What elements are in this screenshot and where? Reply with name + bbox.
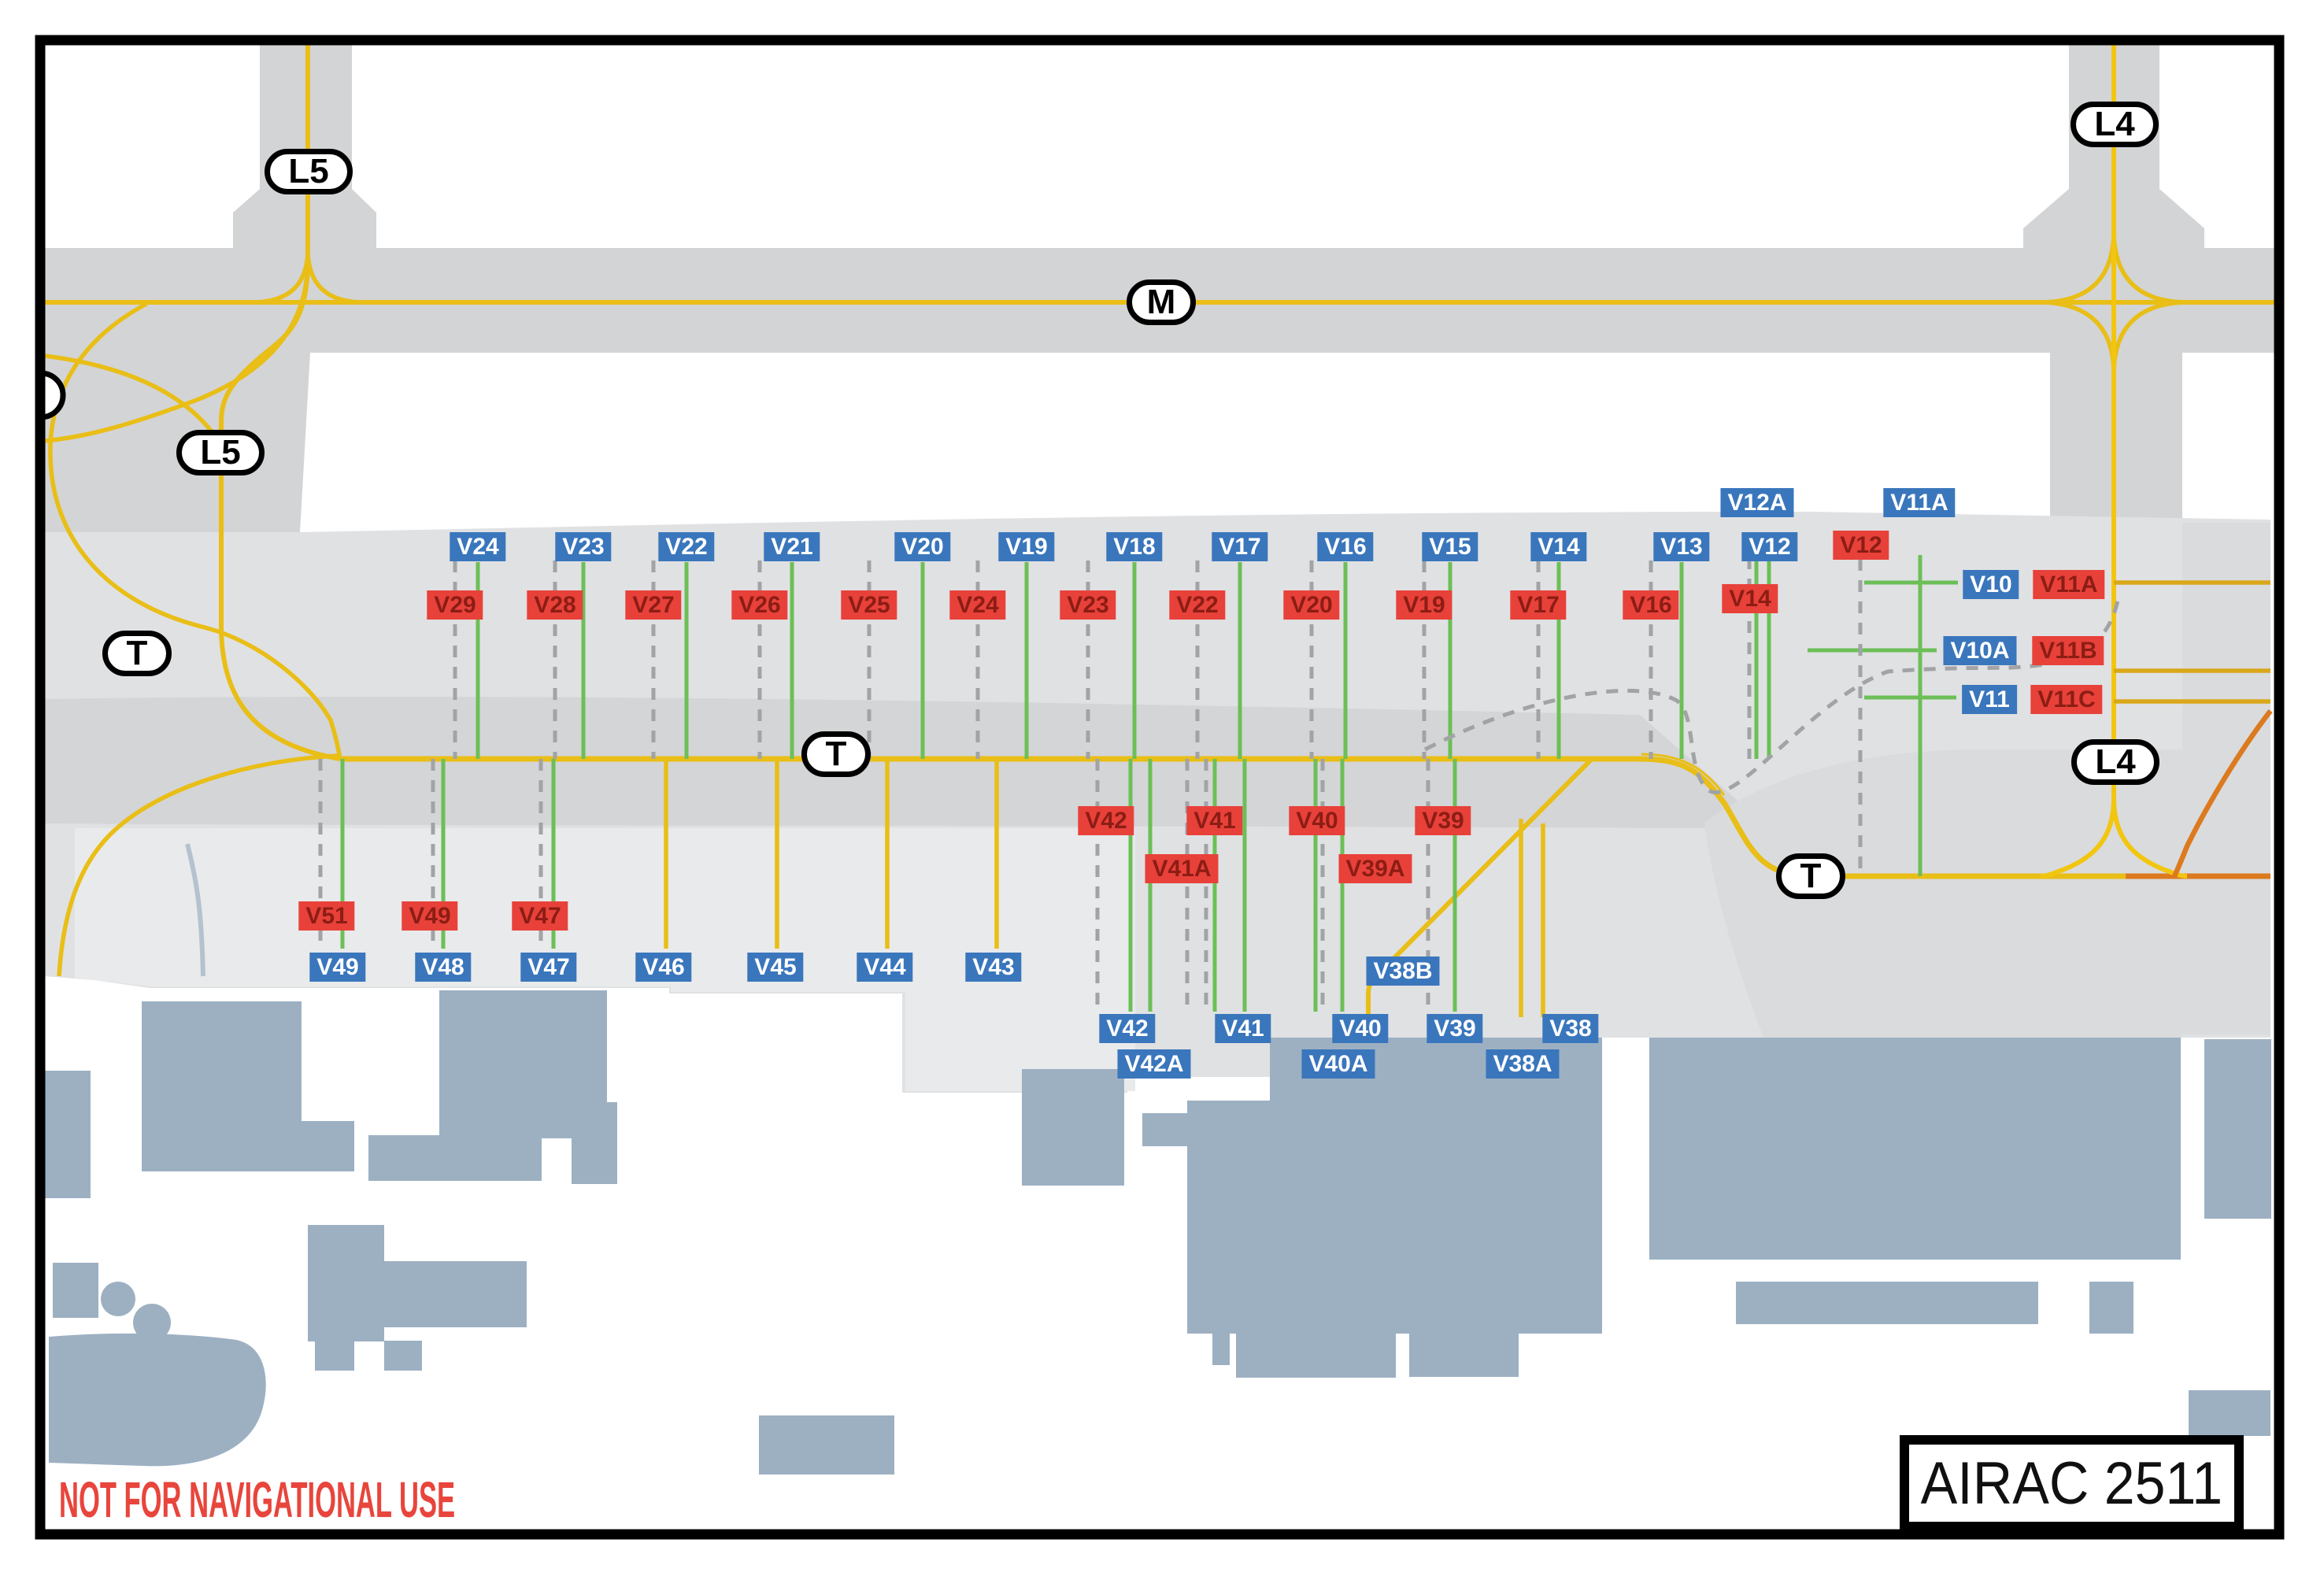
stand-label-v16-blue: V16 <box>1317 532 1373 561</box>
stand-label-v11a-blue: V11A <box>1883 488 1955 517</box>
stand-label-v18-blue: V18 <box>1106 532 1162 561</box>
taxilane-strip <box>45 697 1769 828</box>
airac-cycle-box: AIRAC 2511 <box>1900 1435 2244 1531</box>
stand-label-v29-red: V29 <box>427 590 483 620</box>
stand-label-v16-red: V16 <box>1623 590 1678 620</box>
stand-label-v24-blue: V24 <box>450 532 505 561</box>
stand-label-v12-red: V12 <box>1833 531 1889 560</box>
stand-label-v20-red: V20 <box>1283 590 1339 620</box>
stand-label-v25-red: V25 <box>841 590 897 620</box>
stand-label-v17-blue: V17 <box>1212 532 1267 561</box>
stand-label-v41-red: V41 <box>1186 806 1242 835</box>
stand-label-v24-red: V24 <box>949 590 1005 620</box>
stand-label-v15-blue: V15 <box>1422 532 1478 561</box>
stand-label-v10-blue: V10 <box>1963 570 2019 599</box>
stand-label-v38b-blue: V38B <box>1366 957 1439 986</box>
stand-label-v39a-red: V39A <box>1338 854 1412 883</box>
stand-label-v38-blue: V38 <box>1542 1014 1598 1043</box>
stand-label-v40-blue: V40 <box>1332 1014 1388 1043</box>
stand-label-v11a-red: V11A <box>2033 570 2104 599</box>
taxiway-oval-l4: L4 <box>2071 739 2159 785</box>
stand-label-v13-blue: V13 <box>1653 532 1709 561</box>
taxiway-oval-l5: L5 <box>176 430 265 475</box>
stand-label-v26-red: V26 <box>731 590 787 620</box>
stand-label-v42-blue: V42 <box>1099 1014 1155 1043</box>
airport-diagram-svg <box>0 0 2324 1580</box>
stand-label-v11-blue: V11 <box>1962 685 2017 714</box>
taxiway-oval-l5: L5 <box>265 149 353 194</box>
stand-label-v40-red: V40 <box>1289 806 1345 835</box>
stand-label-v11b-red: V11B <box>2032 636 2104 665</box>
stand-label-v41-blue: V41 <box>1215 1014 1271 1043</box>
stand-label-v21-blue: V21 <box>764 532 820 561</box>
taxiway-oval-t: T <box>1776 853 1845 899</box>
airac-cycle-label: AIRAC 2511 <box>1921 1449 2222 1518</box>
stand-label-v51-red: V51 <box>298 901 354 931</box>
taxiway-l5-band <box>233 45 376 248</box>
stand-label-v28-red: V28 <box>527 590 583 620</box>
stand-label-v47-blue: V47 <box>520 953 576 982</box>
stand-label-v42a-blue: V42A <box>1117 1049 1190 1079</box>
stand-label-v43-blue: V43 <box>965 953 1021 982</box>
taxiway-oval-t: T <box>801 731 871 777</box>
stand-label-v44-blue: V44 <box>857 953 912 982</box>
stand-label-v46-blue: V46 <box>635 953 691 982</box>
stand-label-v47-red: V47 <box>512 901 568 931</box>
stand-label-v12-blue: V12 <box>1741 532 1797 561</box>
not-for-navigation-notice: NOT FOR NAVIGATIONAL USE <box>59 1471 455 1529</box>
stand-label-v42-red: V42 <box>1078 806 1134 835</box>
east-corridor <box>1704 749 2182 1038</box>
airport-ground-chart: L5L4ML5TTL4T V24V23V22V21V20V19V18V17V16… <box>0 0 2324 1580</box>
stand-label-v23-red: V23 <box>1060 590 1116 620</box>
taxiway-oval-t: T <box>102 631 172 676</box>
stand-label-v22-blue: V22 <box>658 532 714 561</box>
stand-label-v39-red: V39 <box>1415 806 1471 835</box>
stand-label-v12a-blue: V12A <box>1720 488 1793 517</box>
stand-label-v23-blue: V23 <box>555 532 611 561</box>
stand-label-v19-blue: V19 <box>998 532 1054 561</box>
stand-label-v20-blue: V20 <box>894 532 950 561</box>
stand-label-v49-red: V49 <box>402 901 457 931</box>
stand-label-v14-red: V14 <box>1722 584 1778 613</box>
stand-label-v10a-blue: V10A <box>1943 636 2016 665</box>
stand-label-v38a-blue: V38A <box>1486 1049 1559 1079</box>
taxiway-oval-l4: L4 <box>2071 102 2159 147</box>
stand-label-v17-red: V17 <box>1510 590 1566 620</box>
stand-label-v22-red: V22 <box>1169 590 1225 620</box>
stand-label-v45-blue: V45 <box>747 953 803 982</box>
stand-label-v39-blue: V39 <box>1427 1014 1482 1043</box>
map-graphics <box>19 45 2279 1475</box>
stand-label-v48-blue: V48 <box>415 953 471 982</box>
stand-label-v40a-blue: V40A <box>1301 1049 1375 1079</box>
stand-label-v27-red: V27 <box>625 590 681 620</box>
stand-label-v49-blue: V49 <box>309 953 365 982</box>
stand-label-v19-red: V19 <box>1396 590 1452 620</box>
stand-label-v41a-red: V41A <box>1145 854 1218 883</box>
taxiway-oval-m: M <box>1127 279 1196 325</box>
stand-label-v14-blue: V14 <box>1530 532 1586 561</box>
left-junction-pavement <box>45 353 310 532</box>
stand-label-v11c-red: V11C <box>2030 685 2102 714</box>
